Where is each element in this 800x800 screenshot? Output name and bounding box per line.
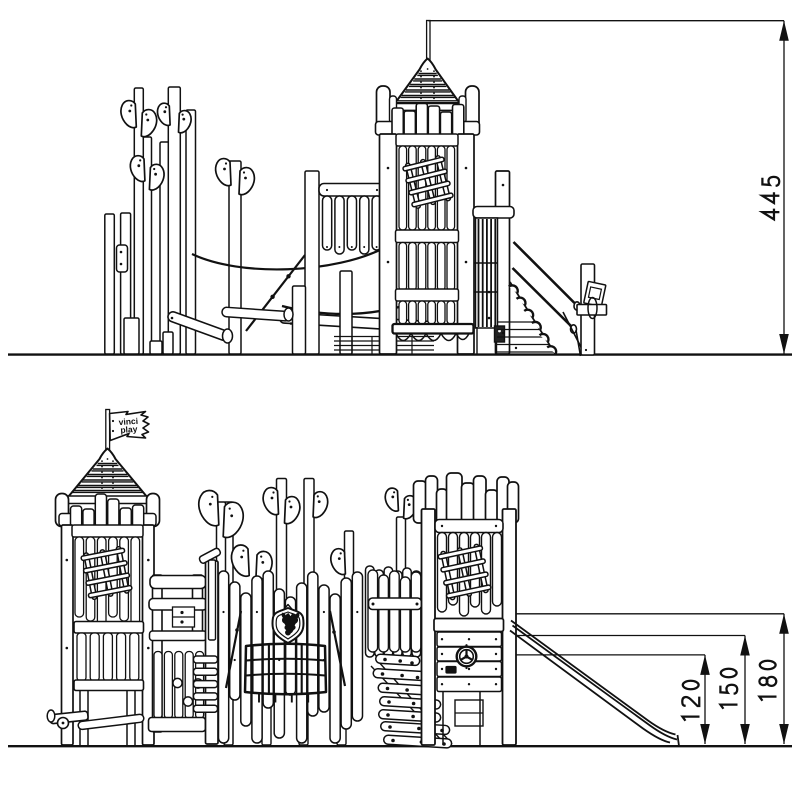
svg-text:play: play [120, 424, 138, 435]
